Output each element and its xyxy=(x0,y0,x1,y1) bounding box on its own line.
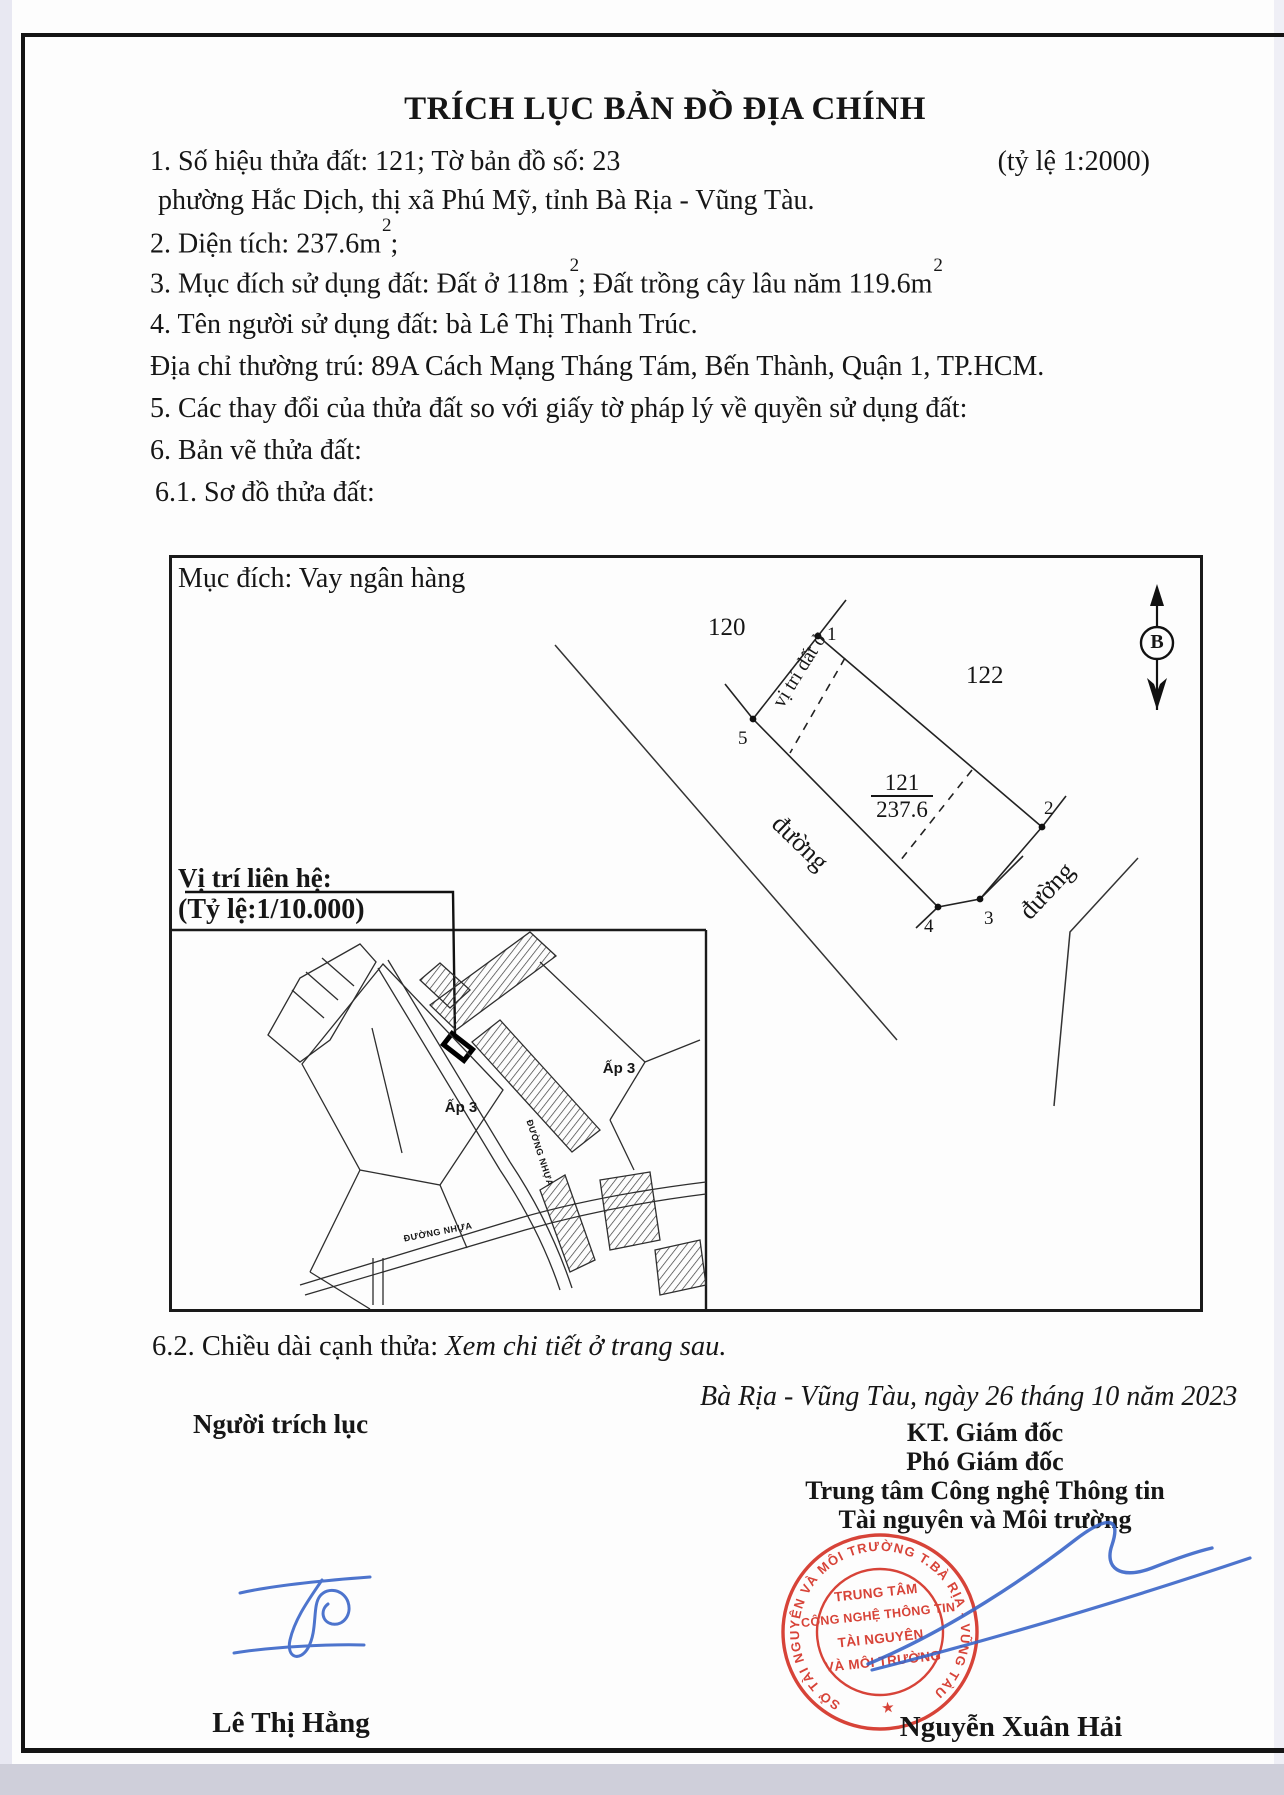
left-signature-underline xyxy=(234,1645,364,1653)
location-heading: Vị trí liên hệ: xyxy=(178,862,332,894)
neighbor-parcel-122: 122 xyxy=(966,662,1004,690)
field-changes: 5. Các thay đổi của thửa đất so với giấy… xyxy=(150,392,967,426)
parcel-number-area-fraction: 121 237.6 xyxy=(871,770,933,822)
field-land-use: 3. Mục đích sử dụng đất: Đất ở 118m2; Đấ… xyxy=(150,266,942,301)
field-area: 2. Diện tích: 237.6m2; xyxy=(150,226,398,261)
field-parcel-number: 1. Số hiệu thửa đất: 121; Tờ bản đồ số: … xyxy=(150,145,620,179)
field-area-end: ; xyxy=(390,228,398,259)
field-owner-address: Địa chỉ thường trú: 89A Cách Mạng Tháng … xyxy=(150,350,1044,384)
field-land-use-b: ; Đất trồng cây lâu năm 119.6m xyxy=(578,268,932,299)
superscript-2: 2 xyxy=(933,255,943,276)
neighbor-parcel-120: 120 xyxy=(708,614,746,642)
field-ward: phường Hắc Dịch, thị xã Phú Mỹ, tỉnh Bà … xyxy=(158,184,815,218)
left-signature-loop xyxy=(289,1580,349,1656)
scan-edge-left xyxy=(0,0,12,1795)
left-signature-stroke xyxy=(240,1577,370,1593)
section-62-label: 6.2. Chiều dài cạnh thửa: xyxy=(152,1331,445,1362)
field-land-use-a: 3. Mục đích sử dụng đất: Đất ở 118m xyxy=(150,268,569,299)
left-signer-name: Lê Thị Hằng xyxy=(189,1706,393,1741)
vertex-label-2: 2 xyxy=(1044,798,1054,820)
location-marker xyxy=(443,1033,472,1060)
sketch-purpose: Mục đích: Vay ngân hàng xyxy=(178,563,465,595)
vertex-label-3: 3 xyxy=(984,908,994,930)
parcel-sketch-box: Mục đích: Vay ngân hàng 120 122 1 2 3 4 … xyxy=(169,555,1203,1312)
document-page: TRÍCH LỤC BẢN ĐỒ ĐỊA CHÍNH 1. Số hiệu th… xyxy=(0,0,1284,1795)
section-6-heading: 6. Bản vẽ thửa đất: xyxy=(150,434,362,468)
parcel-polygon xyxy=(725,600,1066,928)
right-org-2: Tài nguyên và Môi trường xyxy=(783,1505,1187,1534)
north-letter: B xyxy=(1145,631,1169,654)
sketch-drawing xyxy=(172,558,1200,1309)
vertex-label-5: 5 xyxy=(738,728,748,750)
field-owner-name: 4. Tên người sử dụng đất: bà Lê Thị Than… xyxy=(150,308,698,342)
field-map-scale: (tỷ lệ 1:2000) xyxy=(850,145,1150,179)
official-red-stamp: SỞ TÀI NGUYÊN VÀ MÔI TRƯỜNG T.BÀ RỊA - V… xyxy=(770,1522,990,1742)
vertex-label-4: 4 xyxy=(924,916,934,938)
scan-edge-bottom xyxy=(0,1764,1284,1795)
page-frame-top xyxy=(21,33,1284,37)
right-role-1: KT. Giám đốc xyxy=(783,1418,1187,1447)
hamlet-label-right: Ấp 3 xyxy=(594,1060,644,1077)
parcel-number: 121 xyxy=(871,770,933,797)
right-signer-name: Nguyễn Xuân Hải xyxy=(858,1710,1164,1745)
page-frame-bottom xyxy=(21,1748,1284,1753)
right-role-2: Phó Giám đốc xyxy=(783,1447,1187,1476)
section-62-line: 6.2. Chiều dài cạnh thửa: Xem chi tiết ở… xyxy=(152,1330,726,1364)
scan-edge-right xyxy=(1274,0,1284,1795)
hamlet-label-center: Ấp 3 xyxy=(436,1099,486,1116)
superscript-2: 2 xyxy=(570,255,580,276)
parcel-area: 237.6 xyxy=(871,797,933,822)
section-61-heading: 6.1. Sơ đồ thửa đất: xyxy=(155,476,375,510)
page-frame-left xyxy=(21,33,25,1753)
left-signer-role: Người trích lục xyxy=(193,1408,368,1440)
superscript-2: 2 xyxy=(382,215,392,236)
right-org-1: Trung tâm Công nghệ Thông tin xyxy=(783,1476,1187,1505)
field-area-text: 2. Diện tích: 237.6m xyxy=(150,228,381,259)
place-date-line: Bà Rịa - Vũng Tàu, ngày 26 tháng 10 năm … xyxy=(700,1380,1220,1414)
location-map-drawing xyxy=(268,932,706,1309)
page-title: TRÍCH LỤC BẢN ĐỒ ĐỊA CHÍNH xyxy=(150,90,1180,130)
right-signer-block: KT. Giám đốc Phó Giám đốc Trung tâm Công… xyxy=(783,1418,1187,1534)
location-scale: (Tỷ lệ:1/10.000) xyxy=(178,893,365,927)
section-62-note: Xem chi tiết ở trang sau. xyxy=(445,1331,726,1362)
